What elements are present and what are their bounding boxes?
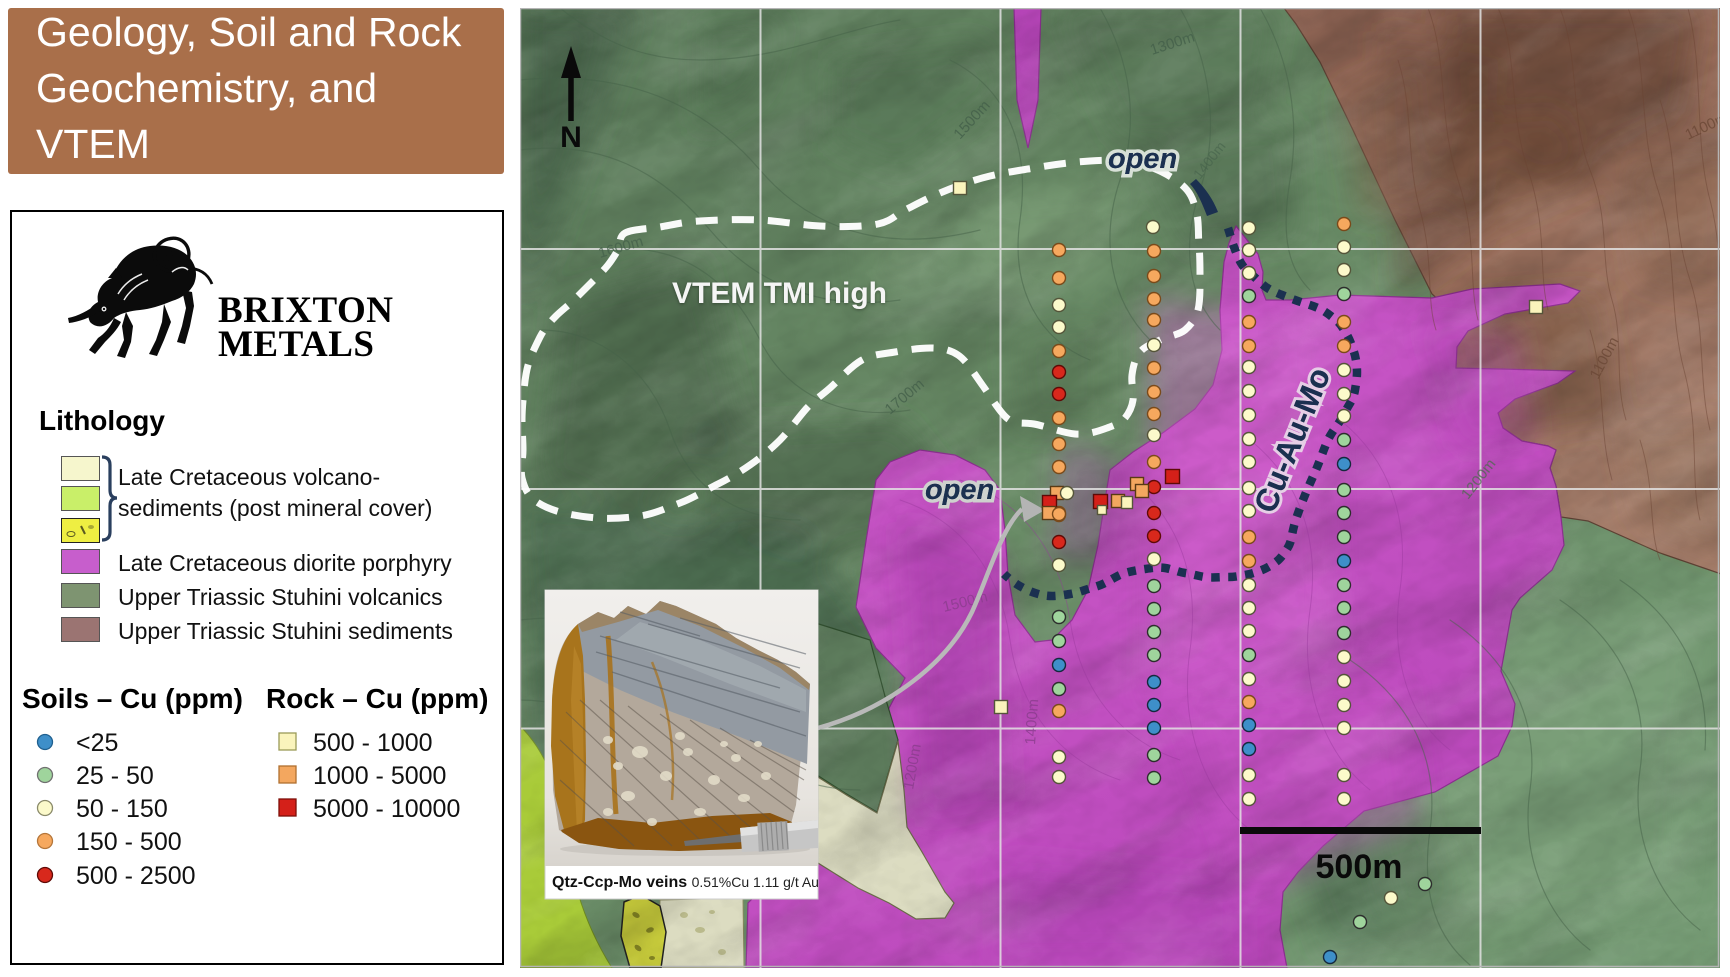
svg-text:1400m: 1400m [1022, 698, 1042, 745]
svg-text:N: N [560, 121, 582, 154]
svg-text:open: open [925, 474, 994, 506]
svg-text:open: open [1108, 143, 1177, 175]
svg-text:Qtz-Ccp-Mo veins 0.51%Cu 1.11: Qtz-Ccp-Mo veins 0.51%Cu 1.11 g/t Au [552, 874, 819, 891]
svg-text:500m: 500m [1316, 848, 1403, 886]
svg-text:VTEM TMI high: VTEM TMI high [672, 277, 887, 310]
